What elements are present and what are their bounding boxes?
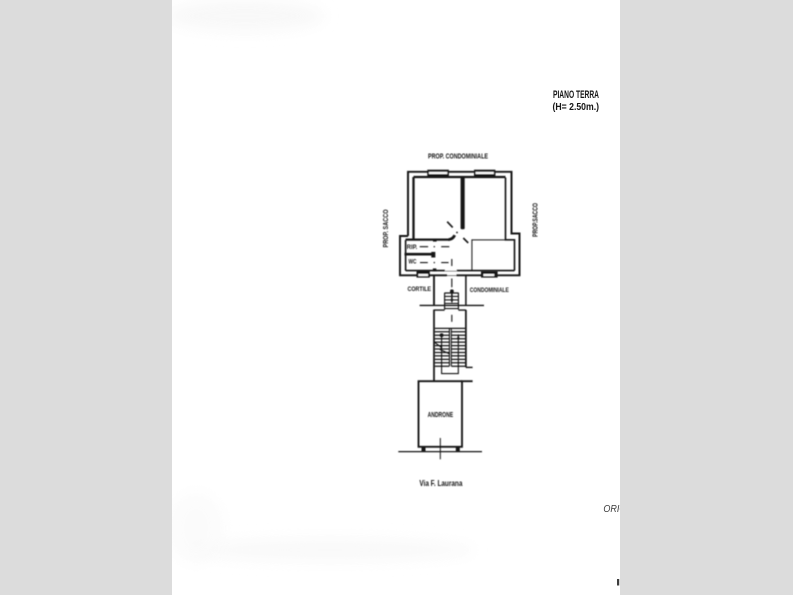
svg-text:PROP. CONDOMINIALE: PROP. CONDOMINIALE <box>428 154 488 161</box>
svg-text:PROP.SACCO: PROP.SACCO <box>533 203 540 237</box>
svg-text:PROP. SACCO: PROP. SACCO <box>383 209 390 247</box>
svg-text:ANDRONE: ANDRONE <box>428 410 454 419</box>
svg-text:CONDOMINIALE: CONDOMINIALE <box>470 287 509 294</box>
svg-text:(H= 2.50m.): (H= 2.50m.) <box>553 102 600 113</box>
svg-text:RIP.: RIP. <box>407 244 418 251</box>
svg-text:PIANO TERRA: PIANO TERRA <box>553 89 599 101</box>
svg-text:Via F. Laurana: Via F. Laurana <box>419 478 462 488</box>
svg-text:WC: WC <box>409 258 417 265</box>
svg-text:CORTILE: CORTILE <box>408 286 432 293</box>
